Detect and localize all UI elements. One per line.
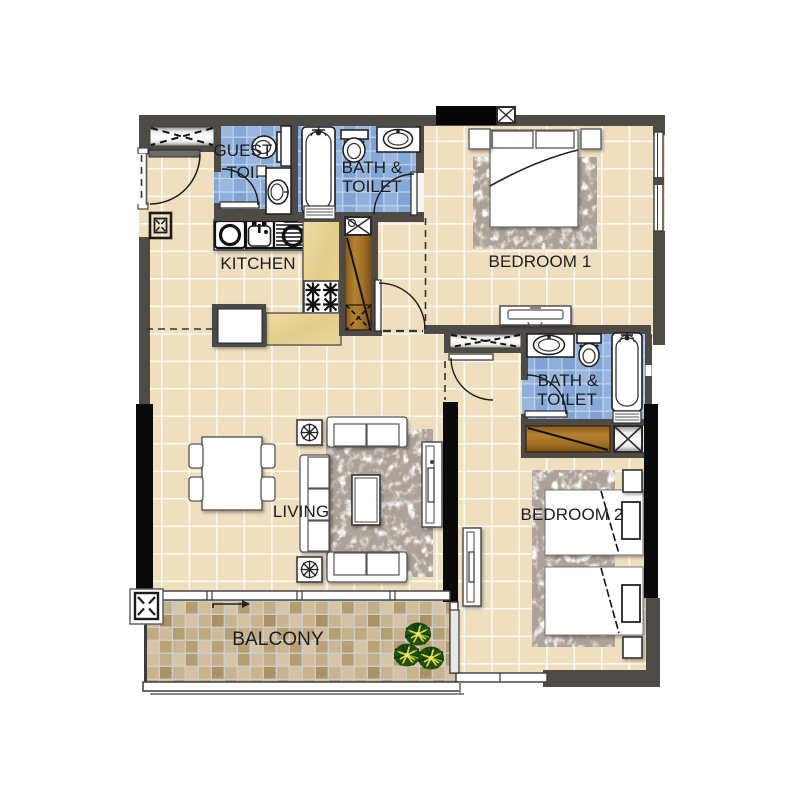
svg-text:GUEST: GUEST: [213, 141, 272, 160]
svg-text:KITCHEN: KITCHEN: [220, 254, 295, 273]
svg-text:TOILET: TOILET: [537, 390, 597, 409]
svg-text:LIVING: LIVING: [273, 502, 329, 521]
svg-text:BEDROOM 2: BEDROOM 2: [521, 505, 624, 524]
svg-text:BATH &: BATH &: [342, 158, 403, 177]
svg-text:BEDROOM 1: BEDROOM 1: [489, 252, 592, 271]
svg-text:BALCONY: BALCONY: [232, 629, 324, 650]
svg-text:BATH &: BATH &: [538, 371, 599, 390]
svg-text:TOILET: TOILET: [342, 177, 402, 196]
svg-text:TOI.: TOI.: [226, 163, 259, 182]
